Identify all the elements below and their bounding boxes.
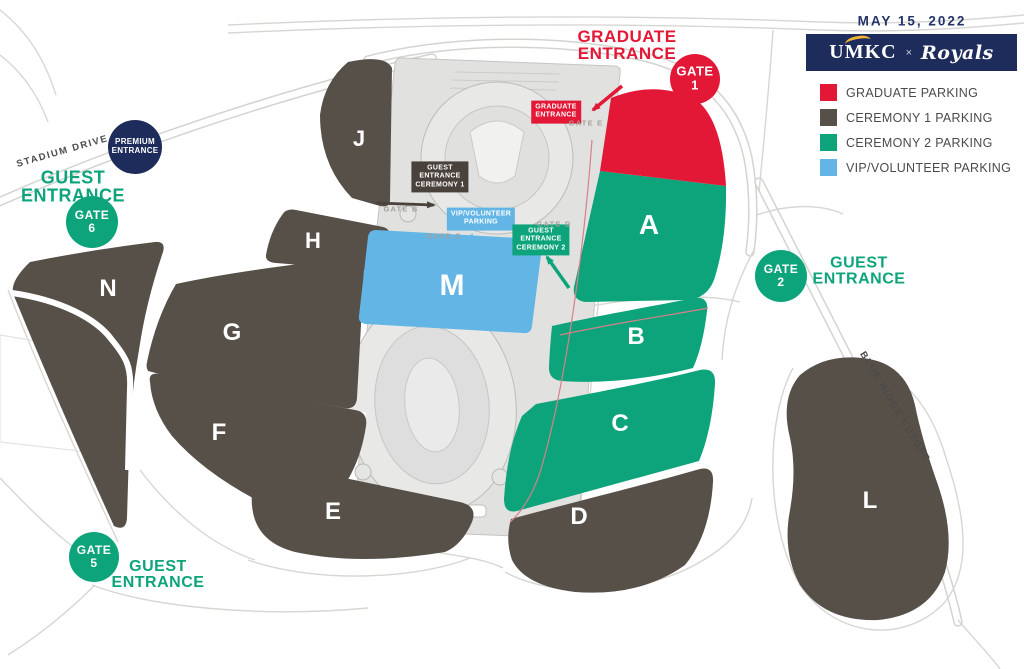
- guest-entrance-line1: GUEST: [813, 256, 906, 272]
- lot-n-shape: [13, 242, 164, 528]
- ceremony2-entrance-callout: GUEST ENTRANCE CEREMONY 2: [512, 224, 569, 255]
- vip-volunteer-callout: VIP/VOLUNTEER PARKING: [447, 208, 515, 231]
- umkc-logo: UMKC: [829, 41, 896, 64]
- lot-h-label: H: [305, 228, 321, 254]
- guest-entrance-line2: ENTRANCE: [813, 271, 906, 287]
- gate-5-number: 5: [77, 557, 111, 570]
- lot-m-label: M: [440, 269, 465, 303]
- graduate-entrance-line1: GRADUATE: [577, 28, 676, 45]
- guest-entrance-east-label: GUEST ENTRANCE: [813, 256, 906, 287]
- callout-line: GUEST: [415, 164, 464, 172]
- premium-line2: ENTRANCE: [112, 147, 159, 156]
- lot-c-label: C: [611, 410, 628, 438]
- road-line: [0, 55, 48, 122]
- legend-swatch-graduate: [820, 84, 837, 101]
- road-line: [8, 585, 95, 655]
- lot-a-label: A: [639, 209, 659, 241]
- road-line: [0, 10, 56, 95]
- legend-item-vip: VIP/VOLUNTEER PARKING: [820, 155, 1011, 180]
- callout-line: CEREMONY 2: [516, 244, 565, 252]
- graduate-entrance-line2: ENTRANCE: [577, 45, 676, 62]
- premium-entrance-marker: PREMIUM ENTRANCE: [112, 138, 159, 156]
- gate-e-label: GATE E: [569, 119, 604, 128]
- graduate-entrance-label: GRADUATE ENTRANCE: [577, 28, 676, 62]
- guest-entrance-line2: ENTRANCE: [112, 575, 205, 591]
- legend: GRADUATE PARKING CEREMONY 1 PARKING CERE…: [820, 80, 1011, 180]
- ramp-circle: [355, 464, 371, 480]
- callout-line: PARKING: [451, 219, 511, 227]
- gate-d-label: GATE D: [537, 220, 572, 229]
- callout-line: VIP/VOLUNTEER: [451, 211, 511, 219]
- callout-line: ENTRANCE: [516, 236, 565, 244]
- ceremony1-entrance-callout: GUEST ENTRANCE CEREMONY 1: [411, 161, 468, 192]
- callout-line: ENTRANCE: [415, 173, 464, 181]
- gate-c-label: GATE C: [427, 232, 462, 241]
- legend-swatch-ceremony1: [820, 109, 837, 126]
- legend-item-graduate: GRADUATE PARKING: [820, 80, 1011, 105]
- legend-item-ceremony1: CEREMONY 1 PARKING: [820, 105, 1011, 130]
- lot-a-red-shape: [600, 89, 726, 186]
- parking-map-page: MAY 15, 2022 UMKC × Royals GRADUATE PARK…: [0, 0, 1024, 669]
- guest-entrance-line2: ENTRANCE: [21, 187, 125, 205]
- legend-label: CEREMONY 1 PARKING: [846, 111, 993, 125]
- lot-l-label: L: [863, 487, 878, 515]
- lot-g-label: G: [223, 319, 242, 347]
- baseball-field: [470, 121, 524, 183]
- event-date: MAY 15, 2022: [858, 14, 967, 29]
- gate-1-word: GATE: [676, 65, 713, 79]
- legend-swatch-vip: [820, 159, 837, 176]
- lot-j-label: J: [353, 126, 365, 152]
- lot-d-label: D: [570, 503, 587, 531]
- guest-entrance-south-label: GUEST ENTRANCE: [112, 559, 205, 591]
- legend-label: CEREMONY 2 PARKING: [846, 136, 993, 150]
- gate-5-marker: GATE 5: [77, 544, 111, 570]
- gate-6-number: 6: [75, 222, 109, 235]
- gate-2-marker: GATE 2: [764, 263, 798, 289]
- gate-2-number: 2: [764, 276, 798, 289]
- callout-line: GRADUATE: [535, 104, 577, 112]
- guest-entrance-west-label: GUEST ENTRANCE: [21, 170, 125, 205]
- road-line: [722, 250, 754, 360]
- gate-b-label: GATE B: [384, 205, 419, 214]
- guest-entrance-line1: GUEST: [21, 170, 125, 188]
- lot-e-label: E: [325, 498, 341, 526]
- gate-1-marker: GATE 1: [676, 65, 713, 94]
- gate-6-marker: GATE 6: [75, 209, 109, 235]
- lot-n-label: N: [99, 275, 116, 303]
- lot-b-label: B: [627, 323, 644, 351]
- legend-label: VIP/VOLUNTEER PARKING: [846, 161, 1011, 175]
- callout-line: GUEST: [516, 227, 565, 235]
- legend-label: GRADUATE PARKING: [846, 86, 978, 100]
- lot-f-label: F: [212, 419, 227, 447]
- road-line: [759, 30, 773, 192]
- legend-item-ceremony2: CEREMONY 2 PARKING: [820, 130, 1011, 155]
- callout-line: CEREMONY 1: [415, 181, 464, 189]
- road-line: [248, 558, 470, 576]
- guest-entrance-line1: GUEST: [112, 559, 205, 575]
- umkc-royals-banner: UMKC × Royals: [806, 34, 1017, 71]
- royals-logo: Royals: [921, 42, 994, 64]
- road-line: [958, 620, 1000, 669]
- legend-swatch-ceremony2: [820, 134, 837, 151]
- logo-separator: ×: [906, 47, 912, 59]
- gate-1-number: 1: [676, 79, 713, 93]
